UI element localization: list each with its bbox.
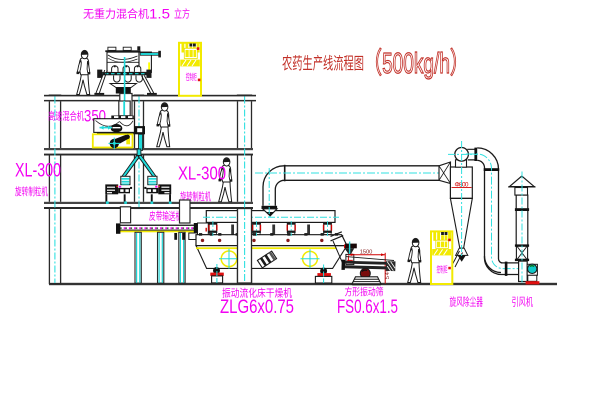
svg-text:无重力混合机: 无重力混合机 — [83, 7, 149, 21]
svg-text:ZLG6x0.75: ZLG6x0.75 — [220, 297, 294, 318]
svg-text:1.5: 1.5 — [149, 6, 170, 22]
svg-text:控制柜: 控制柜 — [437, 265, 448, 275]
svg-text:旋转制粒机: 旋转制粒机 — [15, 185, 48, 198]
svg-text:控制柜: 控制柜 — [186, 72, 197, 82]
svg-text:立方: 立方 — [174, 7, 190, 21]
svg-text:FS0.6x1.5: FS0.6x1.5 — [337, 297, 398, 318]
svg-text:（500kg/h）: （500kg/h） — [363, 48, 469, 80]
svg-text:引风机: 引风机 — [512, 295, 534, 309]
svg-text:XL-300: XL-300 — [15, 161, 61, 182]
svg-text:高速混合机: 高速混合机 — [48, 110, 84, 123]
svg-text:皮带输送机: 皮带输送机 — [149, 210, 182, 223]
svg-text:XL-300: XL-300 — [178, 164, 226, 184]
svg-text:旋风除尘器: 旋风除尘器 — [450, 295, 484, 309]
svg-text:农药生产线流程图: 农药生产线流程图 — [282, 54, 364, 73]
